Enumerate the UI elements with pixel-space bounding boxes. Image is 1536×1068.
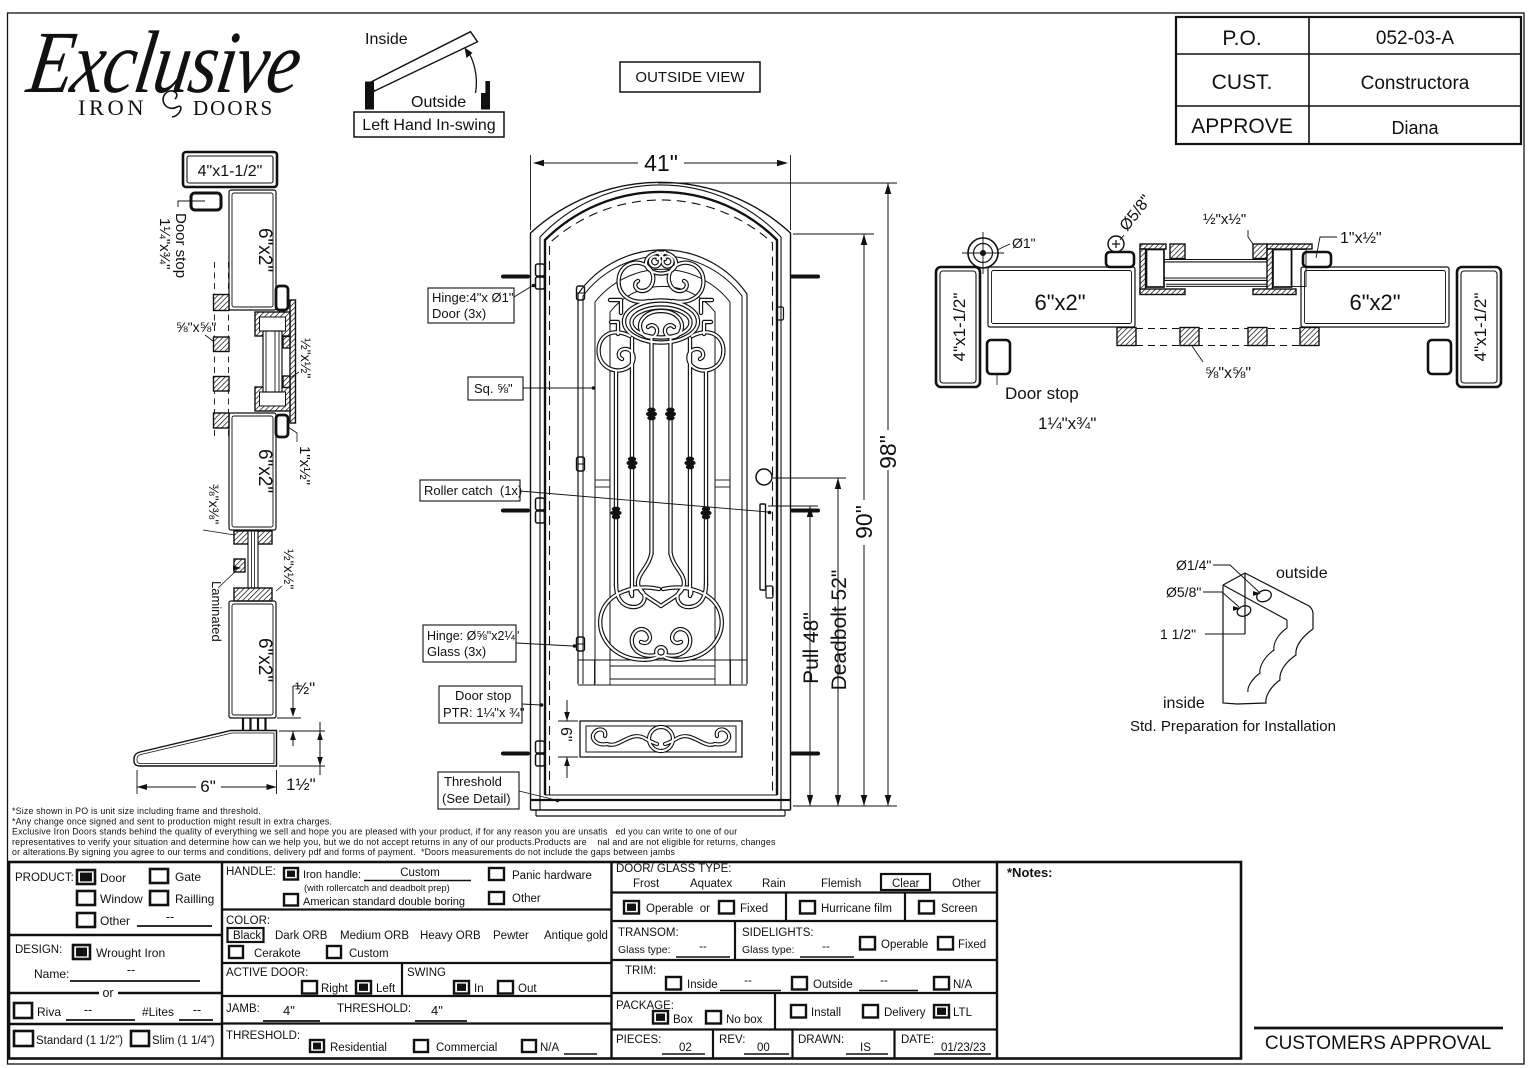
svg-text:American standard double borin: American standard double boring (303, 896, 465, 908)
svg-text:ACTIVE DOOR:: ACTIVE DOOR: (226, 967, 308, 979)
svg-text:--: -- (880, 975, 888, 987)
svg-text:OUTSIDE VIEW: OUTSIDE VIEW (635, 69, 745, 86)
svg-text:*Any change once signed and se: *Any change once signed and sent to prod… (12, 816, 332, 826)
svg-text:IRON: IRON (78, 95, 147, 120)
svg-text:98": 98" (875, 435, 901, 469)
svg-text:052-03-A: 052-03-A (1376, 28, 1454, 49)
svg-text:DESIGN:: DESIGN: (15, 944, 62, 956)
svg-text:Pewter: Pewter (493, 930, 529, 942)
svg-text:6"x2": 6"x2" (1349, 290, 1400, 315)
svg-text:Antique gold: Antique gold (544, 930, 608, 942)
svg-text:Glass type:: Glass type: (618, 944, 671, 956)
svg-text:IS: IS (860, 1042, 871, 1054)
svg-text:TRIM:: TRIM: (625, 965, 656, 977)
svg-text:PIECES:: PIECES: (616, 1034, 661, 1046)
svg-text:*Size shown in PO is unit size: *Size shown in PO is unit size including… (12, 806, 261, 816)
svg-text:--: -- (193, 1003, 201, 1017)
svg-text:Operable or: Operable or (646, 903, 710, 915)
svg-text:or alterations.By signing you: or alterations.By signing you agree to o… (12, 847, 675, 857)
svg-text:Name:: Name: (34, 967, 69, 981)
svg-text:Wrought Iron: Wrought Iron (96, 946, 165, 960)
svg-text:Ø1/4": Ø1/4" (1176, 557, 1211, 573)
svg-text:P.O.: P.O. (1222, 27, 1261, 50)
svg-text:Constructora: Constructora (1361, 73, 1470, 94)
svg-text:Residential: Residential (330, 1042, 387, 1054)
svg-text:1"x½": 1"x½" (1340, 230, 1382, 247)
svg-text:JAMB:: JAMB: (226, 1003, 260, 1015)
svg-text:6"x2": 6"x2" (254, 638, 275, 682)
svg-text:½"x½": ½"x½" (1203, 211, 1246, 228)
svg-text:APPROVE: APPROVE (1191, 115, 1293, 138)
svg-text:Laminated: Laminated (209, 581, 224, 642)
svg-text:Other: Other (100, 914, 130, 928)
svg-text:6"x2": 6"x2" (1034, 290, 1085, 315)
svg-text:SWING: SWING (407, 967, 446, 979)
svg-text:Riva: Riva (37, 1005, 61, 1019)
svg-text:DATE:: DATE: (901, 1034, 934, 1046)
svg-text:4": 4" (283, 1003, 295, 1018)
svg-text:6": 6" (557, 727, 574, 742)
svg-text:THRESHOLD:: THRESHOLD: (337, 1003, 411, 1015)
svg-text:Fixed: Fixed (958, 939, 986, 951)
svg-text:CUST.: CUST. (1212, 71, 1273, 94)
svg-text:Rain: Rain (762, 878, 786, 890)
svg-text:⅝"x⅝": ⅝"x⅝" (176, 319, 216, 335)
svg-text:Delivery: Delivery (884, 1007, 926, 1019)
svg-text:Custom: Custom (349, 948, 389, 960)
svg-text:6"x2": 6"x2" (254, 228, 275, 272)
svg-text:Std. Preparation for Installat: Std. Preparation for Installation (1130, 718, 1336, 735)
svg-text:--: -- (699, 941, 707, 953)
svg-text:½": ½" (295, 679, 315, 698)
svg-text:Inside: Inside (365, 31, 408, 48)
svg-text:--: -- (744, 975, 752, 987)
svg-text:--: -- (127, 963, 135, 977)
svg-text:Screen: Screen (941, 903, 977, 915)
svg-text:outside: outside (1276, 565, 1328, 582)
svg-text:DOOR/ GLASS TYPE:: DOOR/ GLASS TYPE: (616, 863, 731, 875)
svg-text:CUSTOMERS APPROVAL: CUSTOMERS APPROVAL (1265, 1033, 1491, 1054)
svg-text:Aquatex: Aquatex (690, 878, 732, 890)
svg-text:1¼"x¾": 1¼"x¾" (156, 218, 173, 270)
svg-text:REV:: REV: (719, 1034, 745, 1046)
svg-text:Ø1": Ø1" (1012, 235, 1036, 251)
svg-text:6"x2": 6"x2" (254, 449, 275, 493)
svg-text:Operable: Operable (881, 939, 928, 951)
svg-text:Black: Black (233, 930, 261, 942)
svg-text:Fixed: Fixed (740, 903, 768, 915)
svg-text:Door stop: Door stop (1005, 384, 1079, 403)
svg-text:Custom: Custom (400, 867, 440, 879)
svg-text:Clear: Clear (892, 878, 920, 890)
svg-text:inside: inside (1163, 695, 1205, 712)
svg-text:N/A: N/A (540, 1042, 560, 1054)
svg-text:Out: Out (518, 983, 537, 995)
svg-text:#Lites: #Lites (142, 1005, 174, 1019)
svg-text:1¼"x¾": 1¼"x¾" (1038, 414, 1096, 433)
svg-text:representatives to verify your: representatives to verify your situation… (12, 837, 776, 847)
svg-text:Right: Right (321, 983, 349, 995)
svg-text:Box: Box (673, 1014, 693, 1026)
svg-text:Install: Install (811, 1007, 841, 1019)
svg-text:Other: Other (952, 878, 981, 890)
svg-text:00: 00 (757, 1042, 770, 1054)
svg-text:Other: Other (512, 893, 541, 905)
svg-text:1½": 1½" (286, 775, 316, 794)
svg-text:01/23/23: 01/23/23 (941, 1042, 986, 1054)
svg-text:DRAWN:: DRAWN: (798, 1034, 844, 1046)
svg-text:4"x1-1/2": 4"x1-1/2" (198, 163, 263, 180)
svg-text:Sq. ⅝": Sq. ⅝" (474, 381, 513, 396)
svg-text:Panic hardware: Panic hardware (512, 870, 592, 882)
svg-text:Heavy ORB: Heavy ORB (420, 930, 481, 942)
svg-text:Left: Left (376, 983, 396, 995)
svg-text:Threshold: Threshold (444, 774, 502, 789)
svg-text:COLOR:: COLOR: (226, 915, 270, 927)
svg-text:Hurricane film: Hurricane film (821, 903, 892, 915)
svg-text:Window: Window (100, 892, 143, 906)
svg-text:Commercial: Commercial (436, 1042, 497, 1054)
svg-text:Outside: Outside (411, 94, 466, 111)
svg-text:1"x½": 1"x½" (296, 446, 313, 485)
svg-text:--: -- (822, 941, 830, 953)
svg-text:(with rollercatch and deadbolt: (with rollercatch and deadbolt prep) (304, 883, 450, 893)
svg-text:4": 4" (431, 1003, 443, 1018)
svg-text:⅜"x⅜": ⅜"x⅜" (206, 484, 222, 524)
svg-text:No box: No box (726, 1014, 763, 1026)
svg-text:Railling: Railling (175, 892, 214, 906)
svg-text:or: or (102, 986, 113, 1000)
svg-text:Exclusive Iron Doors stands be: Exclusive Iron Doors stands behind the q… (12, 827, 737, 837)
svg-text:PRODUCT:: PRODUCT: (15, 872, 74, 884)
svg-text:N/A: N/A (953, 979, 973, 991)
svg-text:Pull 48": Pull 48" (800, 612, 823, 684)
svg-text:Door stop: Door stop (172, 213, 189, 278)
svg-text:Ø5/8": Ø5/8" (1166, 584, 1201, 600)
svg-text:Standard (1 1/2”): Standard (1 1/2”) (36, 1035, 123, 1047)
svg-text:THRESHOLD:: THRESHOLD: (226, 1030, 300, 1042)
svg-text:Cerakote: Cerakote (254, 948, 301, 960)
svg-text:Door: Door (100, 871, 126, 885)
svg-text:Inside: Inside (687, 979, 718, 991)
svg-text:LTL: LTL (953, 1007, 973, 1019)
svg-text:Frost: Frost (633, 878, 660, 890)
svg-text:⅝"x⅝": ⅝"x⅝" (1205, 365, 1251, 382)
svg-text:Outside: Outside (813, 979, 853, 991)
svg-text:02: 02 (679, 1042, 692, 1054)
svg-text:90": 90" (851, 505, 877, 539)
svg-text:4"x1-1/2": 4"x1-1/2" (950, 293, 969, 362)
svg-text:41": 41" (644, 150, 678, 176)
svg-text:1 1/2": 1 1/2" (1160, 626, 1196, 642)
svg-text:Door (3x): Door (3x) (432, 306, 486, 321)
svg-text:DOORS: DOORS (193, 96, 274, 120)
svg-text:Roller catch (1x): Roller catch (1x) (424, 483, 522, 498)
svg-text:½"x½": ½"x½" (298, 338, 314, 378)
svg-text:4"x1-1/2": 4"x1-1/2" (1471, 293, 1490, 362)
svg-text:Diana: Diana (1391, 118, 1439, 138)
svg-text:In: In (474, 983, 484, 995)
svg-text:Deadbolt 52": Deadbolt 52" (828, 570, 851, 691)
svg-text:Hinge: Ø⅝"x2¼": Hinge: Ø⅝"x2¼" (427, 629, 519, 643)
svg-text:PTR: 1¼"x ¾": PTR: 1¼"x ¾" (443, 705, 525, 720)
svg-text:Hinge:4"x Ø1": Hinge:4"x Ø1" (432, 290, 514, 305)
svg-text:*Notes:: *Notes: (1007, 865, 1053, 880)
svg-text:Dark ORB: Dark ORB (275, 930, 328, 942)
svg-text:Glass type:: Glass type: (742, 944, 795, 956)
svg-text:--: -- (166, 910, 174, 924)
svg-text:Glass (3x): Glass (3x) (427, 644, 486, 659)
svg-text:SIDELIGHTS:: SIDELIGHTS: (742, 927, 814, 939)
svg-text:6": 6" (200, 777, 216, 796)
svg-text:Gate: Gate (175, 870, 201, 884)
svg-text:TRANSOM:: TRANSOM: (618, 927, 679, 939)
svg-text:Left Hand In-swing: Left Hand In-swing (362, 117, 495, 134)
svg-text:Door stop: Door stop (455, 688, 511, 703)
svg-text:--: -- (84, 1003, 92, 1017)
svg-text:½"x½": ½"x½" (281, 549, 297, 589)
svg-text:Medium ORB: Medium ORB (340, 930, 409, 942)
svg-text:Iron handle:: Iron handle: (303, 869, 361, 881)
svg-text:(See Detail): (See Detail) (442, 791, 511, 806)
svg-text:Slim (1 1/4”): Slim (1 1/4”) (152, 1035, 215, 1047)
svg-text:Flemish: Flemish (821, 878, 861, 890)
svg-text:HANDLE:: HANDLE: (226, 866, 276, 878)
